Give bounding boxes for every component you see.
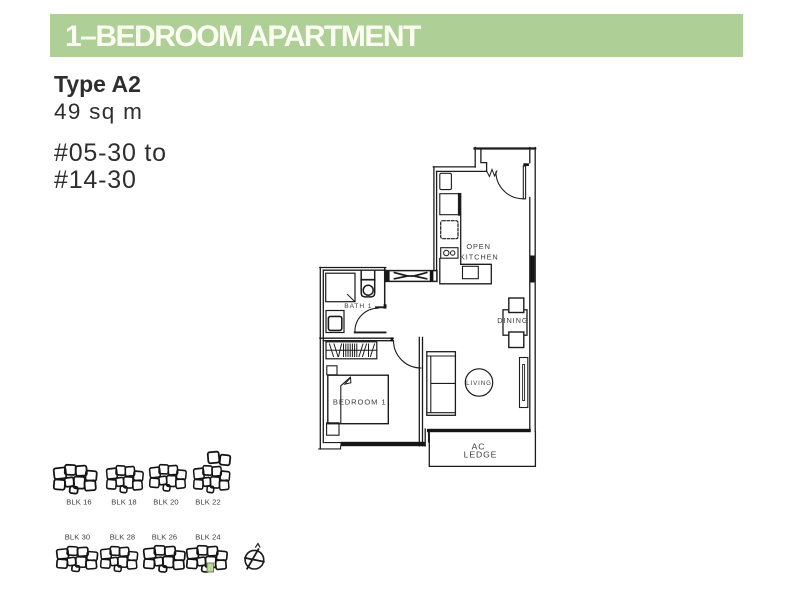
svg-text:BEDROOM 1: BEDROOM 1 (333, 398, 387, 407)
svg-text:BLK 30: BLK 30 (65, 533, 91, 542)
svg-text:BLK 18: BLK 18 (111, 498, 137, 507)
svg-text:KITCHEN: KITCHEN (460, 252, 499, 261)
svg-text:BLK 22: BLK 22 (195, 498, 221, 507)
svg-text:LEDGE: LEDGE (464, 450, 498, 460)
svg-text:BLK 24: BLK 24 (195, 533, 221, 542)
svg-text:DINING: DINING (497, 316, 528, 325)
svg-text:BATH 1: BATH 1 (344, 303, 372, 310)
svg-text:LIVING: LIVING (466, 380, 492, 387)
svg-text:OPEN: OPEN (466, 242, 491, 251)
svg-text:BLK 26: BLK 26 (152, 533, 178, 542)
svg-text:BLK 16: BLK 16 (66, 498, 92, 507)
svg-text:BLK 20: BLK 20 (153, 498, 179, 507)
svg-text:BLK 28: BLK 28 (110, 533, 136, 542)
